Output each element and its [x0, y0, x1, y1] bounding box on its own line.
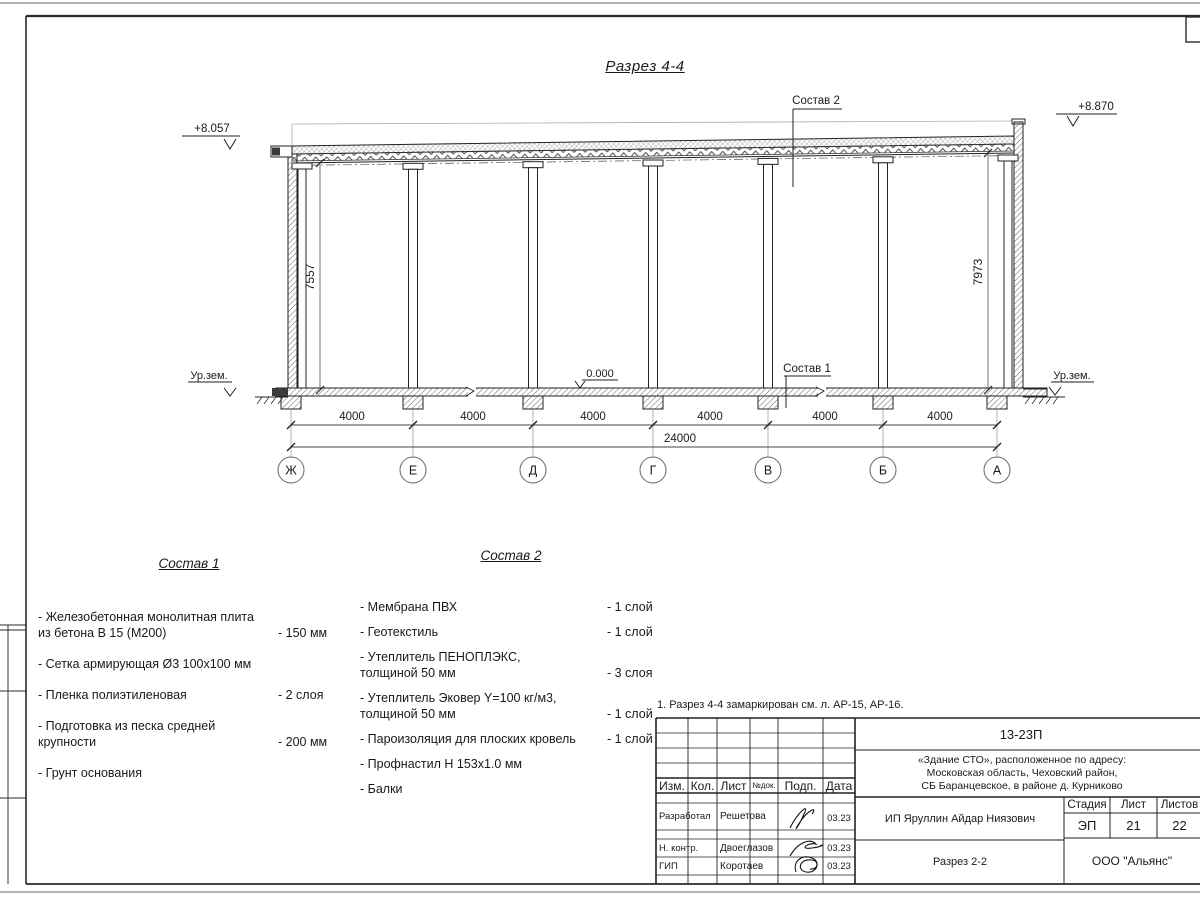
- sign-date: 03.23: [823, 857, 855, 875]
- composition2-title: Состав 2: [360, 548, 662, 563]
- svg-text:+8.057: +8.057: [194, 123, 230, 135]
- sign-date: 03.23: [823, 839, 855, 857]
- corner-stamp-box: [1186, 17, 1200, 42]
- total-dimension-line: 24000: [287, 433, 1001, 451]
- sheets-total: 22: [1157, 813, 1200, 838]
- col-header-ndok: №док.: [750, 778, 778, 793]
- svg-text:Ур.зем.: Ур.зем.: [190, 370, 227, 382]
- drawing-note: 1. Разрез 4-4 замаркирован см. л. АР-15,…: [657, 699, 903, 711]
- bay-dimension-line: 4000 4000 4000 4000 4000 4000: [287, 411, 1001, 429]
- drawing-sheet: 7557 7973 +8.057 +8.870 0.000 Ур.зем.: [0, 0, 1200, 900]
- right-wall-parapet: [1014, 122, 1023, 388]
- col-header-list: Лист: [717, 778, 750, 793]
- elevation-left-top: +8.057: [182, 123, 240, 149]
- composition1-block: Состав 1 - Железобетонная монолитная пли…: [38, 556, 340, 796]
- role-label: Разработал: [659, 803, 717, 830]
- stage-label: Стадия: [1064, 797, 1110, 813]
- sheet-label: Лист: [1110, 797, 1157, 813]
- list-item: - Пароизоляция для плоских кровель- 1 сл…: [360, 731, 662, 747]
- axis-bubbles: Ж Е Д Г В Б А: [278, 457, 1010, 483]
- ground-mark-left: Ур.зем.: [188, 370, 236, 396]
- sheet-number: 21: [1110, 813, 1157, 838]
- list-item: - Мембрана ПВХ- 1 слой: [360, 599, 662, 615]
- list-item: - Пленка полиэтиленовая- 2 слоя: [38, 687, 340, 703]
- sign-date: 03.23: [823, 806, 855, 830]
- footing-pads: [281, 396, 1007, 409]
- project-name: «Здание СТО», расположенное по адресу: М…: [856, 750, 1188, 797]
- svg-text:4000: 4000: [927, 411, 953, 423]
- list-item: - Подготовка из песка средней крупности-…: [38, 718, 340, 750]
- stage-value: ЭП: [1064, 813, 1110, 838]
- list-item: - Железобетонная монолитная плита из бет…: [38, 609, 340, 641]
- svg-text:А: А: [993, 464, 1002, 478]
- svg-text:В: В: [764, 464, 772, 478]
- role-label: Н. контр.: [659, 839, 717, 857]
- section-view: 7557 7973 +8.057 +8.870 0.000 Ур.зем.: [182, 95, 1117, 483]
- svg-text:+8.870: +8.870: [1078, 101, 1114, 113]
- section-title: Разрез 4-4: [540, 58, 750, 75]
- list-item: - Геотекстиль- 1 слой: [360, 624, 662, 640]
- svg-text:Д: Д: [529, 464, 538, 478]
- list-item: - Утеплитель ПЕНОПЛЭКС, толщиной 50 мм- …: [360, 649, 662, 681]
- list-item: - Грунт основания: [38, 765, 340, 781]
- person-name: Решетова: [720, 803, 778, 830]
- col-header-podp: Подп.: [778, 778, 823, 793]
- company-name: ООО "Альянс": [1064, 838, 1200, 884]
- signature-marks: [790, 809, 823, 873]
- svg-text:7557: 7557: [303, 263, 317, 290]
- elevation-right-top: +8.870: [1056, 101, 1117, 126]
- list-item: - Балки: [360, 781, 662, 797]
- sheets-label: Листов: [1157, 797, 1200, 813]
- svg-text:Е: Е: [409, 464, 417, 478]
- list-item: - Сетка армирующая Ø3 100х100 мм: [38, 656, 340, 672]
- left-wall: [288, 154, 297, 388]
- drawing-name: Разрез 2-2: [856, 840, 1064, 884]
- person-name: Двоеглазов: [720, 839, 782, 857]
- list-item: - Утеплитель Эковер Y=100 кг/м3, толщино…: [360, 690, 662, 722]
- axis-extension-lines: [291, 410, 997, 457]
- leader-floor-composition: Состав 1: [783, 363, 831, 408]
- client-name: ИП Яруллин Айдар Ниязович: [856, 797, 1064, 840]
- svg-text:4000: 4000: [460, 411, 486, 423]
- svg-text:Состав 1: Состав 1: [783, 363, 831, 375]
- svg-text:7973: 7973: [971, 258, 985, 285]
- svg-text:24000: 24000: [664, 433, 696, 445]
- svg-text:4000: 4000: [697, 411, 723, 423]
- left-margin-table: [0, 625, 26, 884]
- svg-text:4000: 4000: [339, 411, 365, 423]
- doc-number: 13-23П: [856, 718, 1186, 750]
- col-header-kol: Кол.: [688, 778, 717, 793]
- role-label: ГИП: [659, 857, 717, 875]
- composition2-block: Состав 2 - Мембрана ПВХ- 1 слой - Геотек…: [360, 548, 662, 806]
- svg-text:Г: Г: [650, 464, 657, 478]
- svg-text:4000: 4000: [812, 411, 838, 423]
- col-header-izm: Изм.: [656, 778, 688, 793]
- svg-text:4000: 4000: [580, 411, 606, 423]
- person-name: Коротаев: [720, 857, 782, 875]
- col-header-data: Дата: [823, 778, 855, 793]
- svg-text:Ж: Ж: [285, 464, 297, 478]
- columns: [292, 155, 1018, 388]
- svg-text:0.000: 0.000: [586, 368, 614, 380]
- ground-mark-right: Ур.зем.: [1049, 370, 1094, 395]
- list-item: - Профнастил Н 153х1.0 мм: [360, 756, 662, 772]
- composition1-title: Состав 1: [38, 556, 340, 571]
- vertical-dim-right: 7973: [971, 149, 992, 394]
- svg-text:Б: Б: [879, 464, 887, 478]
- svg-text:Состав 2: Состав 2: [792, 95, 840, 107]
- svg-text:Ур.зем.: Ур.зем.: [1053, 370, 1090, 382]
- floor-slab: [276, 388, 1047, 396]
- elevation-floor: 0.000: [575, 368, 618, 388]
